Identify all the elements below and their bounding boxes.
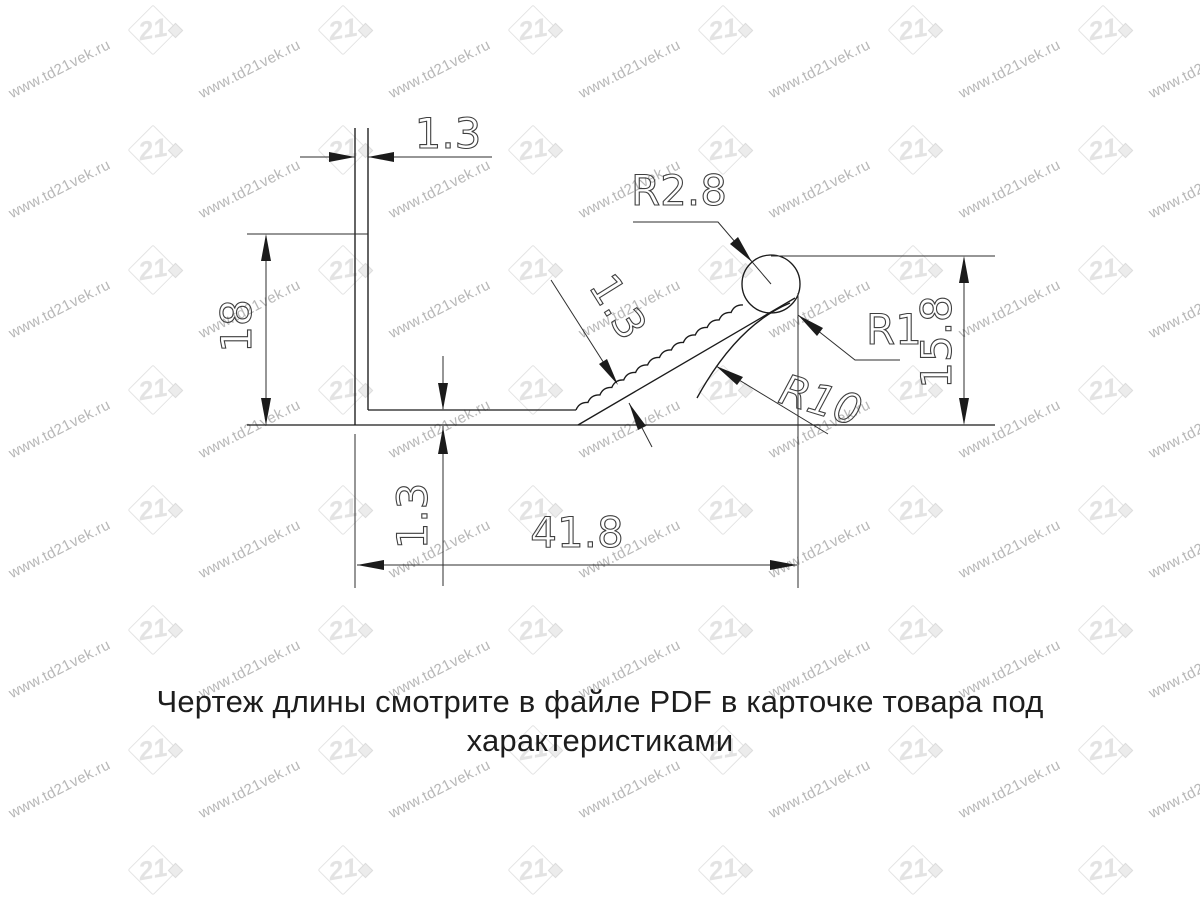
label-joint-radius: R1 [798,305,922,360]
arm-thickness-value: 1.3 [580,265,657,348]
bulb-radius-value: R2.8 [631,166,727,215]
arrowhead [959,398,969,425]
technical-drawing: 1.3 18 1.3 41.8 [0,0,1200,900]
caption: Чертеж длины смотрите в файле PDF в карт… [0,682,1200,760]
arrowhead [599,359,618,385]
underside-fillet-arc [697,303,790,398]
arrowhead [329,152,355,162]
arrowhead [438,427,448,454]
dim-arm-thickness: 1.3 [551,265,656,447]
arrowhead [438,383,448,410]
bottom-thickness-value: 1.3 [388,483,437,550]
arrowhead [261,398,271,425]
arrowhead [629,403,646,430]
dim-bottom-thickness: 1.3 [388,356,448,586]
dim-top-thickness: 1.3 [300,109,492,162]
top-thickness-value: 1.3 [415,109,482,158]
wall-height-value: 18 [212,299,261,352]
arrowhead [730,237,752,262]
arrowhead [716,366,743,385]
page: 21www.td21vek.ru21www.td21vek.ru21www.td… [0,0,1200,900]
caption-text: Чертеж длины смотрите в файле PDF в карт… [130,682,1070,760]
arrowhead [770,560,797,570]
arrowhead [368,152,394,162]
arrowhead [357,560,384,570]
dim-wall-height: 18 [212,234,271,425]
arrowhead [959,256,969,283]
label-bulb-radius: R2.8 [631,166,771,284]
arrowhead [261,234,271,261]
arrowhead [798,315,823,336]
joint-radius-value: R1 [866,305,922,354]
leader-line [633,222,771,284]
total-width-value: 41.8 [530,508,624,557]
